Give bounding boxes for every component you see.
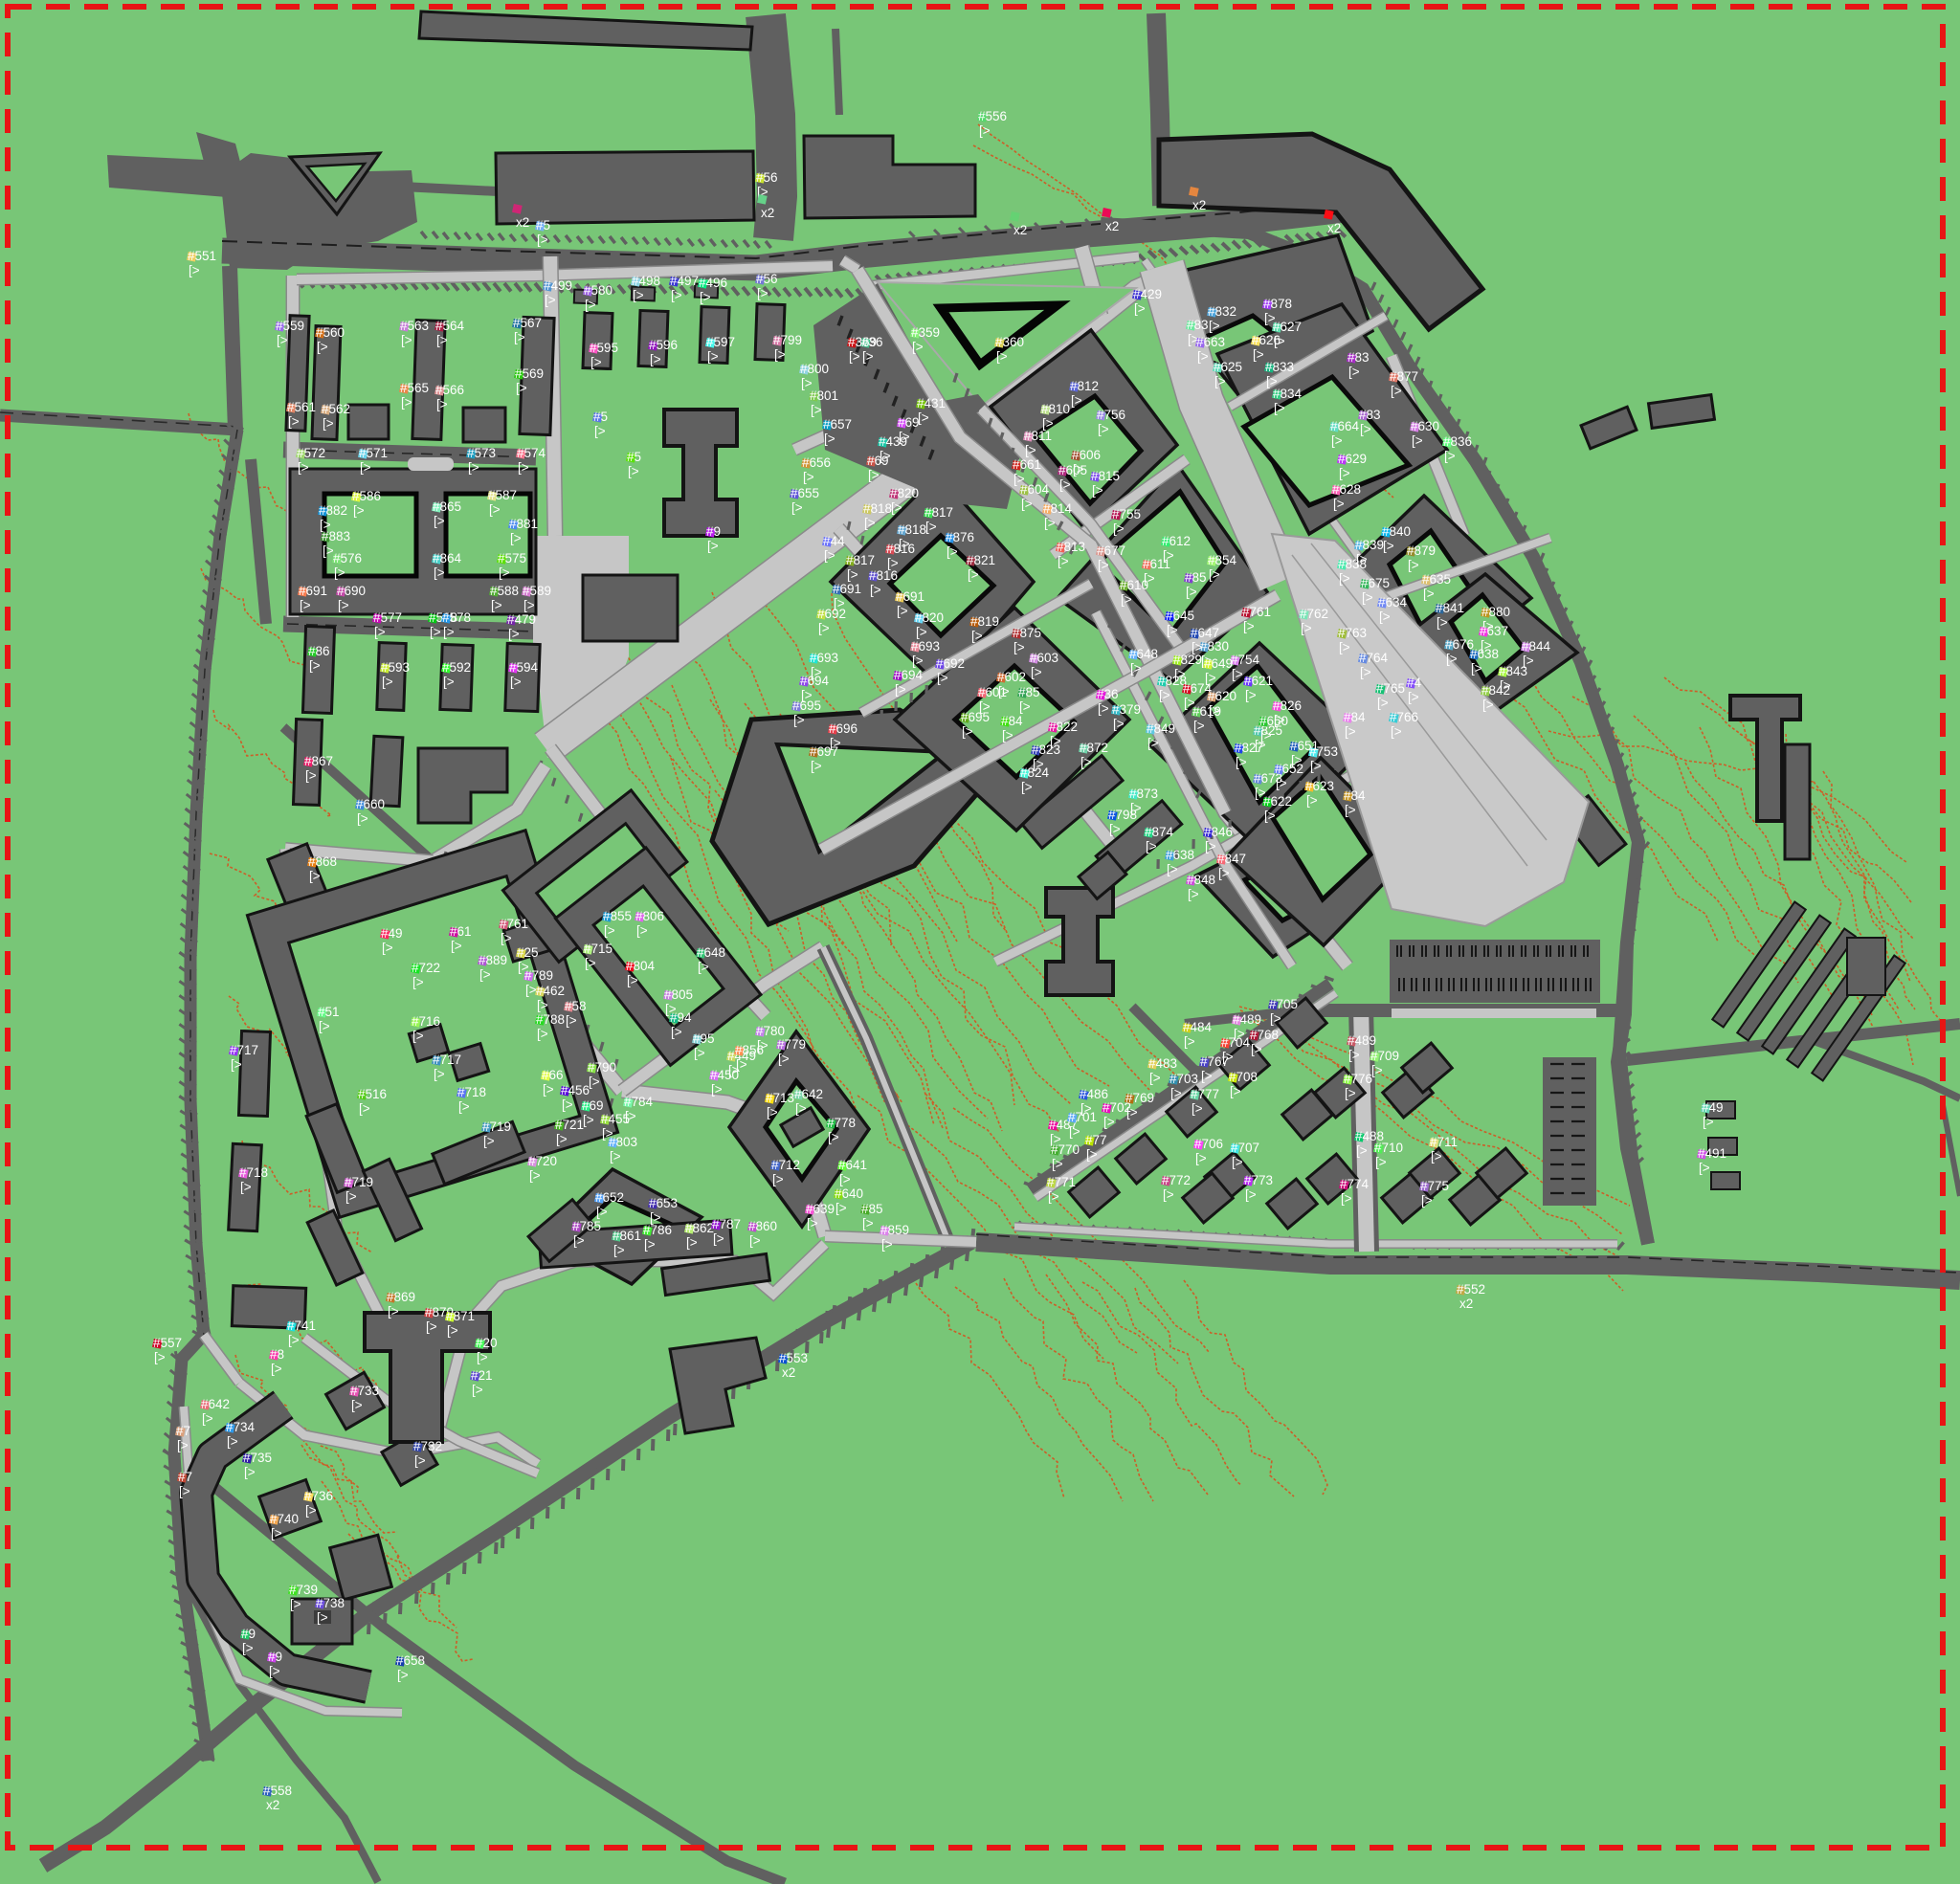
svg-text:[>: [> [1408,690,1419,704]
svg-text:#770: #770 [1051,1142,1080,1157]
svg-text:[>: [> [1339,640,1350,654]
svg-text:[>: [> [360,460,371,475]
svg-text:#875: #875 [1013,626,1041,640]
svg-text:#655: #655 [791,486,819,500]
svg-text:[>: [> [881,1237,893,1252]
svg-text:[>: [> [397,1668,409,1682]
svg-text:#761: #761 [1242,605,1271,619]
svg-text:[>: [> [523,598,535,612]
svg-text:#571: #571 [359,446,388,460]
svg-text:x2: x2 [516,215,529,230]
svg-text:#693: #693 [810,651,838,665]
svg-text:#602: #602 [997,670,1026,684]
svg-text:[>: [> [868,468,880,482]
svg-text:#820: #820 [915,610,944,625]
svg-text:[>: [> [412,975,424,989]
svg-text:#635: #635 [1422,572,1451,587]
svg-text:#450: #450 [710,1068,739,1082]
svg-text:[>: [> [849,349,860,364]
svg-text:[>: [> [707,539,719,553]
svg-text:#597: #597 [706,335,735,349]
svg-text:#677: #677 [1097,543,1125,558]
svg-text:[>: [> [271,1526,282,1540]
svg-text:[>: [> [1444,449,1456,463]
svg-text:[>: [> [382,941,393,955]
svg-text:[>: [> [1209,567,1220,582]
svg-text:#675: #675 [1361,576,1390,590]
svg-text:[>: [> [543,1082,554,1097]
svg-text:#656: #656 [802,455,831,470]
svg-text:[>: [> [1379,610,1391,624]
svg-text:#95: #95 [693,1031,715,1046]
svg-text:[>: [> [1375,1155,1387,1169]
svg-text:#715: #715 [584,942,612,956]
svg-text:#551: #551 [188,249,216,263]
svg-text:#874: #874 [1145,825,1174,839]
svg-text:#838: #838 [1338,557,1367,571]
svg-text:#718: #718 [457,1085,486,1099]
svg-text:[>: [> [269,1664,280,1678]
svg-text:#861: #861 [612,1229,641,1243]
svg-text:#483: #483 [1148,1056,1177,1071]
svg-text:#856: #856 [735,1043,764,1057]
svg-text:#84: #84 [1344,710,1366,724]
svg-text:#694: #694 [800,674,830,688]
svg-text:[>: [> [227,1434,238,1449]
svg-text:#819: #819 [970,614,999,629]
svg-text:[>: [> [862,349,874,364]
svg-text:#638: #638 [1166,848,1194,862]
svg-text:#612: #612 [1162,534,1191,548]
svg-text:[>: [> [864,516,876,530]
svg-text:[>: [> [707,349,719,364]
svg-text:#486: #486 [1080,1087,1108,1101]
svg-text:#586: #586 [352,489,381,503]
svg-text:#83: #83 [1187,318,1209,332]
svg-text:#784: #784 [624,1095,654,1109]
svg-text:#648: #648 [1129,647,1158,661]
svg-text:#693: #693 [911,639,940,654]
svg-text:[>: [> [309,869,321,883]
svg-text:[>: [> [489,502,501,517]
svg-text:[>: [> [671,288,682,302]
svg-text:#865: #865 [433,499,461,514]
svg-text:[>: [> [633,288,644,302]
svg-text:#94: #94 [670,1010,692,1025]
svg-text:[>: [> [1699,1161,1710,1175]
svg-text:[>: [> [1274,401,1285,415]
svg-text:#775: #775 [1420,1179,1449,1193]
svg-text:[>: [> [202,1411,213,1426]
svg-text:[>: [> [472,1383,483,1397]
svg-text:#5: #5 [627,450,641,464]
svg-text:#85: #85 [1018,685,1040,699]
svg-text:#695: #695 [961,710,990,724]
svg-text:[>: [> [671,1025,682,1039]
svg-text:#552: #552 [1457,1282,1485,1297]
svg-text:#733: #733 [350,1384,379,1398]
svg-text:#21: #21 [471,1368,493,1383]
svg-text:#640: #640 [835,1186,863,1201]
svg-text:[>: [> [1421,1193,1433,1208]
svg-text:#841: #841 [1436,601,1464,615]
svg-text:[>: [> [847,567,858,582]
svg-text:#652: #652 [1275,762,1303,776]
svg-text:[>: [> [937,671,948,685]
svg-text:[>: [> [1339,571,1350,586]
svg-text:#623: #623 [1305,779,1334,793]
svg-text:#860: #860 [748,1219,777,1233]
svg-text:#593: #593 [381,660,410,675]
svg-text:#575: #575 [498,551,526,565]
svg-text:[>: [> [562,1097,573,1112]
svg-text:#379: #379 [1112,702,1141,717]
svg-text:#44: #44 [823,534,845,548]
svg-text:#827: #827 [1235,741,1263,755]
svg-text:[>: [> [1391,724,1402,739]
svg-text:[>: [> [596,1205,608,1219]
svg-text:[>: [> [644,1237,656,1252]
svg-text:#778: #778 [827,1116,856,1130]
svg-text:[>: [> [1408,558,1419,572]
svg-text:#622: #622 [1263,794,1292,809]
svg-text:#611: #611 [1143,557,1170,571]
svg-text:#563: #563 [400,319,429,333]
svg-text:#873: #873 [1129,787,1158,801]
svg-text:[>: [> [1209,319,1220,333]
svg-text:#628: #628 [1332,482,1361,497]
svg-text:#741: #741 [287,1319,316,1333]
svg-text:[>: [> [510,675,522,689]
svg-text:#573: #573 [467,446,496,460]
svg-text:#456: #456 [561,1083,590,1097]
svg-text:#497: #497 [670,274,699,288]
svg-text:[>: [> [1360,422,1371,436]
svg-text:[>: [> [537,233,548,247]
svg-text:#66: #66 [542,1068,564,1082]
svg-text:[>: [> [510,531,522,545]
svg-text:[>: [> [613,1243,625,1257]
svg-text:#626: #626 [1252,333,1281,347]
svg-text:[>: [> [1192,1101,1203,1116]
svg-text:[>: [> [556,1132,568,1146]
svg-text:#603: #603 [1030,651,1058,665]
svg-text:[>: [> [1360,665,1371,679]
svg-text:#881: #881 [509,517,538,531]
svg-text:#868: #868 [308,854,337,869]
svg-text:#652: #652 [595,1190,624,1205]
svg-text:[>: [> [244,1465,256,1479]
svg-text:[>: [> [585,298,596,312]
svg-text:#496: #496 [699,276,727,290]
svg-text:#879: #879 [1407,543,1436,558]
svg-text:[>: [> [1163,1187,1174,1202]
svg-text:[>: [> [1301,621,1312,635]
svg-text:#772: #772 [1162,1173,1191,1187]
svg-text:[>: [> [1021,780,1033,794]
svg-text:[>: [> [918,410,929,425]
svg-text:[>: [> [1371,1063,1383,1077]
svg-text:[>: [> [154,1350,166,1364]
svg-text:[>: [> [795,1101,807,1116]
svg-text:#754: #754 [1231,653,1260,667]
svg-text:#785: #785 [572,1219,601,1233]
svg-text:#739: #739 [289,1583,318,1597]
svg-text:x2: x2 [1192,198,1206,212]
svg-text:#763: #763 [1338,626,1367,640]
svg-text:[>: [> [323,416,334,431]
svg-text:#768: #768 [1250,1028,1279,1042]
svg-text:#709: #709 [1370,1049,1399,1063]
svg-text:#642: #642 [201,1397,230,1411]
svg-text:[>: [> [317,340,328,354]
svg-text:[>: [> [491,598,502,612]
svg-text:[>: [> [1243,619,1255,633]
svg-text:#559: #559 [276,319,304,333]
svg-text:[>: [> [1071,393,1082,408]
svg-text:#9: #9 [241,1627,256,1641]
svg-text:[>: [> [803,470,814,484]
svg-text:#610: #610 [1120,578,1148,592]
svg-text:#498: #498 [632,274,660,288]
svg-text:#696: #696 [829,721,857,736]
svg-text:[>: [> [1260,728,1272,743]
svg-text:[>: [> [573,1233,585,1248]
svg-text:[>: [> [1086,1147,1098,1162]
svg-text:#499: #499 [544,278,572,293]
svg-text:[>: [> [824,432,835,446]
svg-text:#691: #691 [896,589,924,604]
svg-text:#814: #814 [1043,501,1073,516]
svg-text:#787: #787 [712,1217,741,1231]
svg-text:[>: [> [1149,1071,1161,1085]
svg-text:[>: [> [518,960,529,974]
svg-text:#777: #777 [1191,1087,1219,1101]
svg-text:#690: #690 [337,584,366,598]
svg-text:#56: #56 [756,170,778,185]
svg-text:#707: #707 [1231,1141,1259,1155]
svg-text:[>: [> [1201,1069,1213,1083]
svg-text:#755: #755 [1112,507,1141,521]
svg-text:#567: #567 [513,316,542,330]
svg-text:[>: [> [1130,661,1142,676]
svg-text:[>: [> [545,293,556,307]
svg-text:[>: [> [1134,301,1146,316]
svg-text:#811: #811 [1024,429,1052,443]
svg-text:#650: #650 [1259,714,1288,728]
svg-text:#25: #25 [517,945,539,960]
svg-text:[>: [> [177,1438,189,1452]
svg-text:[>: [> [891,500,902,515]
svg-text:#717: #717 [230,1043,258,1057]
svg-text:[>: [> [277,333,288,347]
svg-text:[>: [> [309,658,321,673]
svg-text:[>: [> [650,352,661,366]
svg-text:[>: [> [971,629,983,643]
svg-text:[>: [> [778,1052,790,1066]
svg-text:x2: x2 [782,1365,795,1380]
svg-text:[>: [> [604,923,615,938]
svg-text:[>: [> [1236,755,1247,769]
svg-text:#880: #880 [1481,605,1510,619]
svg-text:#661: #661 [1013,457,1041,472]
svg-text:#560: #560 [316,325,345,340]
svg-text:#8: #8 [270,1347,284,1362]
svg-text:[>: [> [323,543,334,558]
svg-text:#779: #779 [777,1037,806,1052]
svg-text:[>: [> [1098,701,1109,716]
svg-text:#692: #692 [936,656,965,671]
svg-text:[>: [> [1437,615,1448,630]
svg-text:#817: #817 [924,505,953,520]
svg-text:[>: [> [628,464,639,478]
svg-text:[>: [> [713,1231,724,1246]
svg-text:#713: #713 [766,1091,794,1105]
svg-text:[>: [> [1113,717,1125,731]
svg-text:[>: [> [1044,516,1056,530]
svg-text:[>: [> [1031,665,1042,679]
svg-text:[>: [> [1251,1042,1262,1056]
svg-text:#872: #872 [1080,741,1108,755]
svg-text:#49: #49 [381,926,403,941]
svg-text:[>: [> [962,724,973,739]
svg-text:[>: [> [1195,1151,1207,1165]
svg-text:#691: #691 [299,584,327,598]
svg-text:x2: x2 [1327,221,1341,235]
svg-text:[>: [> [1230,1084,1241,1098]
svg-text:#491: #491 [1698,1146,1726,1161]
svg-text:#804: #804 [626,959,656,973]
svg-text:#864: #864 [433,551,462,565]
svg-text:#462: #462 [536,984,565,998]
svg-text:[>: [> [589,1075,600,1089]
svg-text:#738: #738 [316,1596,345,1610]
svg-text:[>: [> [271,1362,282,1376]
svg-text:#720: #720 [528,1154,557,1168]
svg-text:#734: #734 [226,1420,256,1434]
svg-text:#580: #580 [584,283,612,298]
svg-text:#790: #790 [588,1060,616,1075]
svg-text:#706: #706 [1194,1137,1223,1151]
svg-text:#849: #849 [1147,721,1175,736]
svg-text:#820: #820 [890,486,919,500]
svg-text:[>: [> [947,544,958,559]
svg-text:[>: [> [436,333,448,347]
svg-text:#704: #704 [1221,1035,1251,1050]
svg-text:[>: [> [514,330,525,344]
svg-text:#701: #701 [1068,1110,1097,1124]
svg-text:#716: #716 [412,1014,440,1029]
svg-text:#765: #765 [1376,681,1405,696]
svg-text:[>: [> [508,627,520,641]
svg-text:#718: #718 [239,1165,268,1180]
svg-text:[>: [> [757,286,768,300]
svg-text:#565: #565 [400,381,429,395]
svg-text:#369: #369 [848,335,877,349]
svg-text:#49: #49 [1702,1100,1724,1115]
svg-text:[>: [> [298,460,309,475]
svg-text:#61: #61 [450,924,472,939]
svg-text:[>: [> [686,1235,698,1250]
svg-text:#883: #883 [322,529,350,543]
svg-text:x2: x2 [1013,223,1027,237]
svg-text:#630: #630 [1411,419,1439,433]
svg-text:#762: #762 [1300,607,1328,621]
svg-text:#756: #756 [1097,408,1125,422]
svg-text:[>: [> [700,290,711,304]
svg-text:#822: #822 [1049,720,1078,734]
svg-text:#9: #9 [268,1650,282,1664]
svg-text:#592: #592 [442,660,471,675]
svg-text:[>: [> [1098,558,1109,572]
svg-text:#705: #705 [1269,997,1298,1011]
svg-text:#69: #69 [898,415,920,430]
svg-text:[>: [> [1245,688,1257,702]
svg-text:#576: #576 [333,551,362,565]
svg-text:[>: [> [839,1172,851,1186]
svg-text:#561: #561 [287,400,316,414]
svg-text:#846: #846 [1204,825,1233,839]
svg-text:#4: #4 [1407,676,1422,690]
svg-text:[>: [> [818,621,830,635]
svg-text:#558: #558 [263,1784,292,1798]
svg-text:[>: [> [434,565,445,580]
svg-text:#694: #694 [894,668,924,682]
svg-text:[>: [> [1192,640,1203,654]
svg-text:[>: [> [824,548,835,563]
svg-text:#813: #813 [1057,540,1085,554]
svg-text:#619: #619 [1192,704,1221,719]
svg-text:[>: [> [317,1610,328,1625]
svg-text:[>: [> [359,1101,370,1116]
svg-text:#20: #20 [476,1336,498,1350]
svg-text:#566: #566 [435,383,464,397]
svg-text:#604: #604 [1020,482,1050,497]
svg-text:#703: #703 [1169,1072,1198,1086]
svg-text:[>: [> [1080,755,1092,769]
svg-text:#629: #629 [1338,452,1367,466]
svg-text:[>: [> [1270,1011,1281,1026]
svg-text:[>: [> [979,123,991,138]
svg-text:[>: [> [897,604,908,618]
svg-text:#843: #843 [1499,664,1527,678]
svg-text:#717: #717 [433,1053,461,1067]
svg-text:#621: #621 [1244,674,1273,688]
svg-text:#801: #801 [810,388,838,403]
svg-text:#639: #639 [806,1202,835,1216]
svg-text:[>: [> [357,811,368,826]
svg-text:[>: [> [862,1216,874,1230]
svg-text:[>: [> [1348,365,1360,379]
svg-text:[>: [> [1348,1048,1360,1062]
svg-text:#800: #800 [800,362,829,376]
svg-text:#817: #817 [846,553,875,567]
svg-text:[>: [> [537,1027,548,1041]
svg-text:#878: #878 [1263,297,1292,311]
svg-text:[>: [> [388,1304,399,1319]
svg-text:#664: #664 [1330,419,1360,433]
svg-text:x2: x2 [761,206,774,220]
svg-text:[>: [> [1391,384,1402,398]
svg-text:[>: [> [501,931,512,945]
svg-text:[>: [> [711,1082,723,1097]
svg-text:[>: [> [585,956,596,970]
svg-text:#766: #766 [1390,710,1418,724]
svg-text:[>: [> [401,333,412,347]
svg-text:[>: [> [1471,661,1482,676]
svg-text:[>: [> [590,355,602,369]
svg-text:#834: #834 [1273,387,1303,401]
